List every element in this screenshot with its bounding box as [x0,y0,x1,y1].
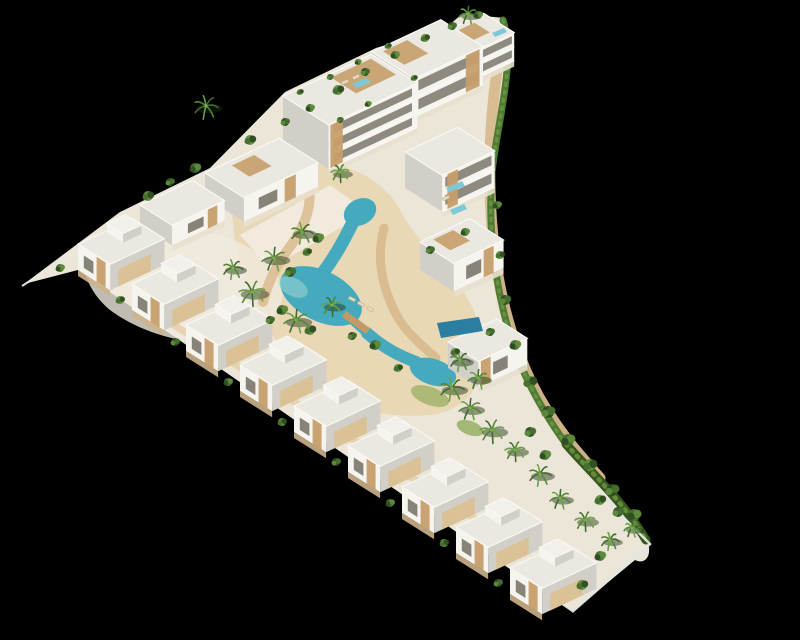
bush-clump [605,488,612,495]
bush-clump [411,77,415,81]
bush-clump [595,498,601,504]
bush-clump [306,107,311,112]
bush-clump [266,319,271,324]
palm-crown [490,428,493,431]
bush-clump [361,71,366,76]
palm-crown [294,318,297,321]
bush-clump [523,380,530,387]
palm-crown [558,496,561,499]
palm-crown [231,266,234,269]
bush-clump [493,204,498,209]
bush-clump [486,331,491,336]
bush-clump [386,502,391,507]
bush-clump [391,54,396,59]
palm-frond [332,305,333,317]
palm-crown [608,538,611,541]
bush-clump [224,381,229,386]
bush-clump [385,45,389,49]
palm-frond [585,520,586,532]
bush-clump [541,410,548,417]
palm-crown [466,12,469,15]
bush-clump [577,583,583,589]
bush-clump [421,37,426,42]
bush-clump [56,267,61,272]
bush-clump [337,119,341,123]
bush-clump [426,249,431,254]
bush-clump [595,554,601,560]
wood-cladding [484,246,494,278]
wood-cladding [330,119,342,168]
bush-clump [116,299,121,304]
bush-clump [583,463,590,470]
wood-cladding [466,49,480,92]
bush-clump [305,328,311,334]
palm-crown [583,518,586,521]
render-stage [0,0,800,640]
palm-crown [204,104,207,107]
bush-clump [510,343,516,349]
palm-frond [492,430,493,444]
bush-clump [365,103,369,107]
bush-clump [496,254,501,259]
palm-crown [468,406,471,409]
bush-clump [613,510,619,516]
palm-frond [515,450,516,462]
palm-crown [450,386,453,389]
bush-clump [313,236,319,242]
bush-clump [285,270,291,276]
bush-clump [333,88,339,94]
palm-crown [630,526,633,529]
bush-clump [355,61,359,65]
palm-frond [252,292,253,307]
bush-clump [440,542,445,547]
bush-clump [277,308,283,314]
bush-clump [348,335,353,340]
bush-clump [394,367,399,372]
aerial-site-plan-render [0,0,800,640]
bush-clump [461,231,466,236]
bush-clump [451,351,456,356]
bush-clump [245,138,251,144]
bush-clump [500,298,506,304]
bush-clump [303,251,308,256]
bush-clump [143,194,149,200]
palm-crown [538,472,541,475]
bush-clump [332,461,337,466]
bush-clump [540,453,546,459]
bush-clump [370,343,376,349]
bush-clump [474,14,479,19]
bush-clump [494,582,499,587]
bush-clump [448,25,453,30]
palm-crown [458,358,461,361]
palm-crown [250,290,253,293]
palm-crown [476,376,479,379]
bush-clump [166,181,171,186]
bush-clump [297,91,301,95]
palm-crown [300,230,303,233]
bush-clump [627,513,634,520]
palm-crown [330,303,333,306]
bush-clump [281,121,286,126]
palm-crown [513,448,516,451]
bush-clump [278,421,283,426]
bush-clump [561,438,568,445]
bush-clump [327,76,331,80]
bush-clump [190,166,196,172]
bush-clump [171,341,176,346]
palm-crown [338,170,341,173]
palm-crown [272,256,275,259]
bush-clump [525,430,531,436]
